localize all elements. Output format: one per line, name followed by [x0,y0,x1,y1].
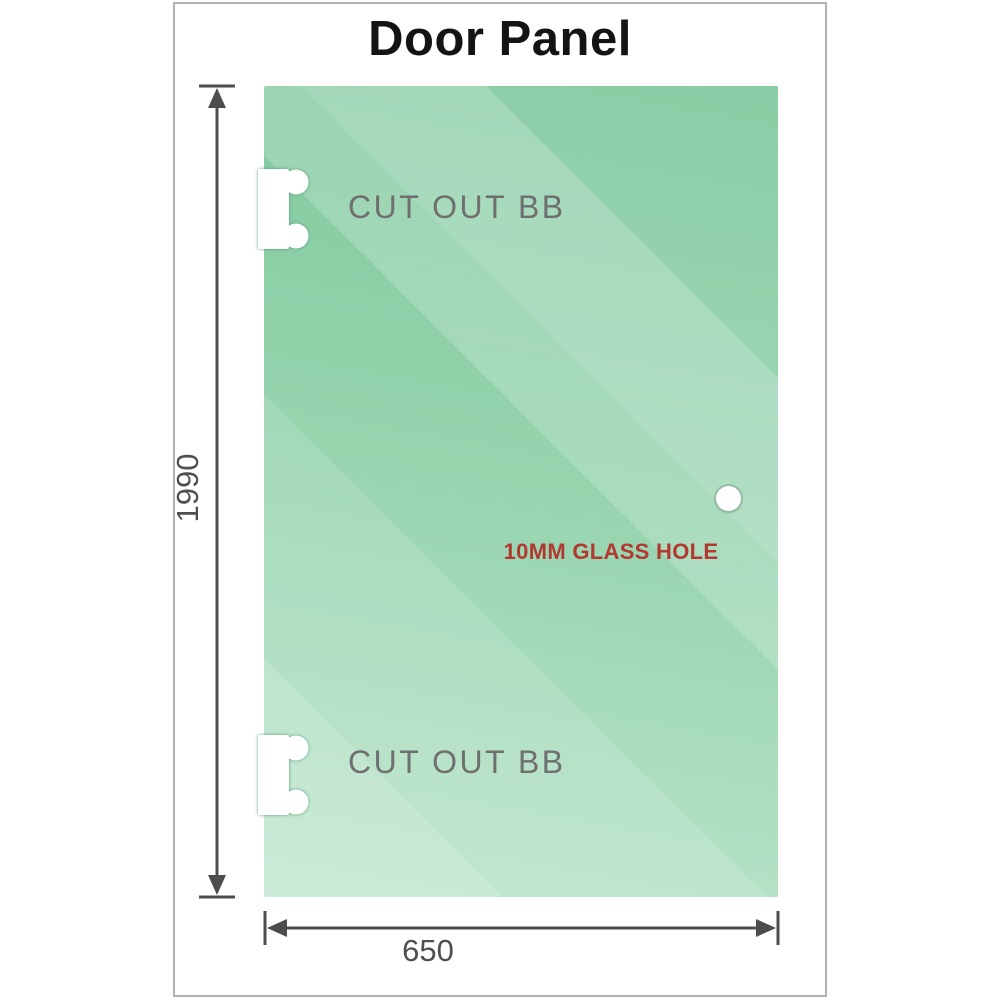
cutout-lobe-bottom [284,224,309,249]
arrow-right-icon [756,919,776,937]
cutout-lobe-top [284,736,309,761]
arrow-left-icon [267,919,287,937]
door-panel-diagram: Door Panel CUT OUT BB CUT OUT BB 10MM GL… [0,0,1000,1000]
hinge-cutout-top [258,166,312,252]
cutout-label-top: CUT OUT BB [348,187,566,227]
diagram-title: Door Panel [173,11,827,67]
height-dimension-label: 1990 [170,454,206,523]
width-dimension [258,906,786,958]
glass-hole-label: 10MM GLASS HOLE [504,539,719,565]
arrow-down-icon [208,875,226,895]
width-dimension-label: 650 [402,933,454,969]
glass-hole [716,486,741,511]
cutout-lobe-top [284,170,309,195]
arrow-up-icon [208,88,226,108]
hinge-cutout-bottom [258,732,312,818]
cutout-label-bottom: CUT OUT BB [348,742,566,782]
cutout-lobe-bottom [284,790,309,815]
